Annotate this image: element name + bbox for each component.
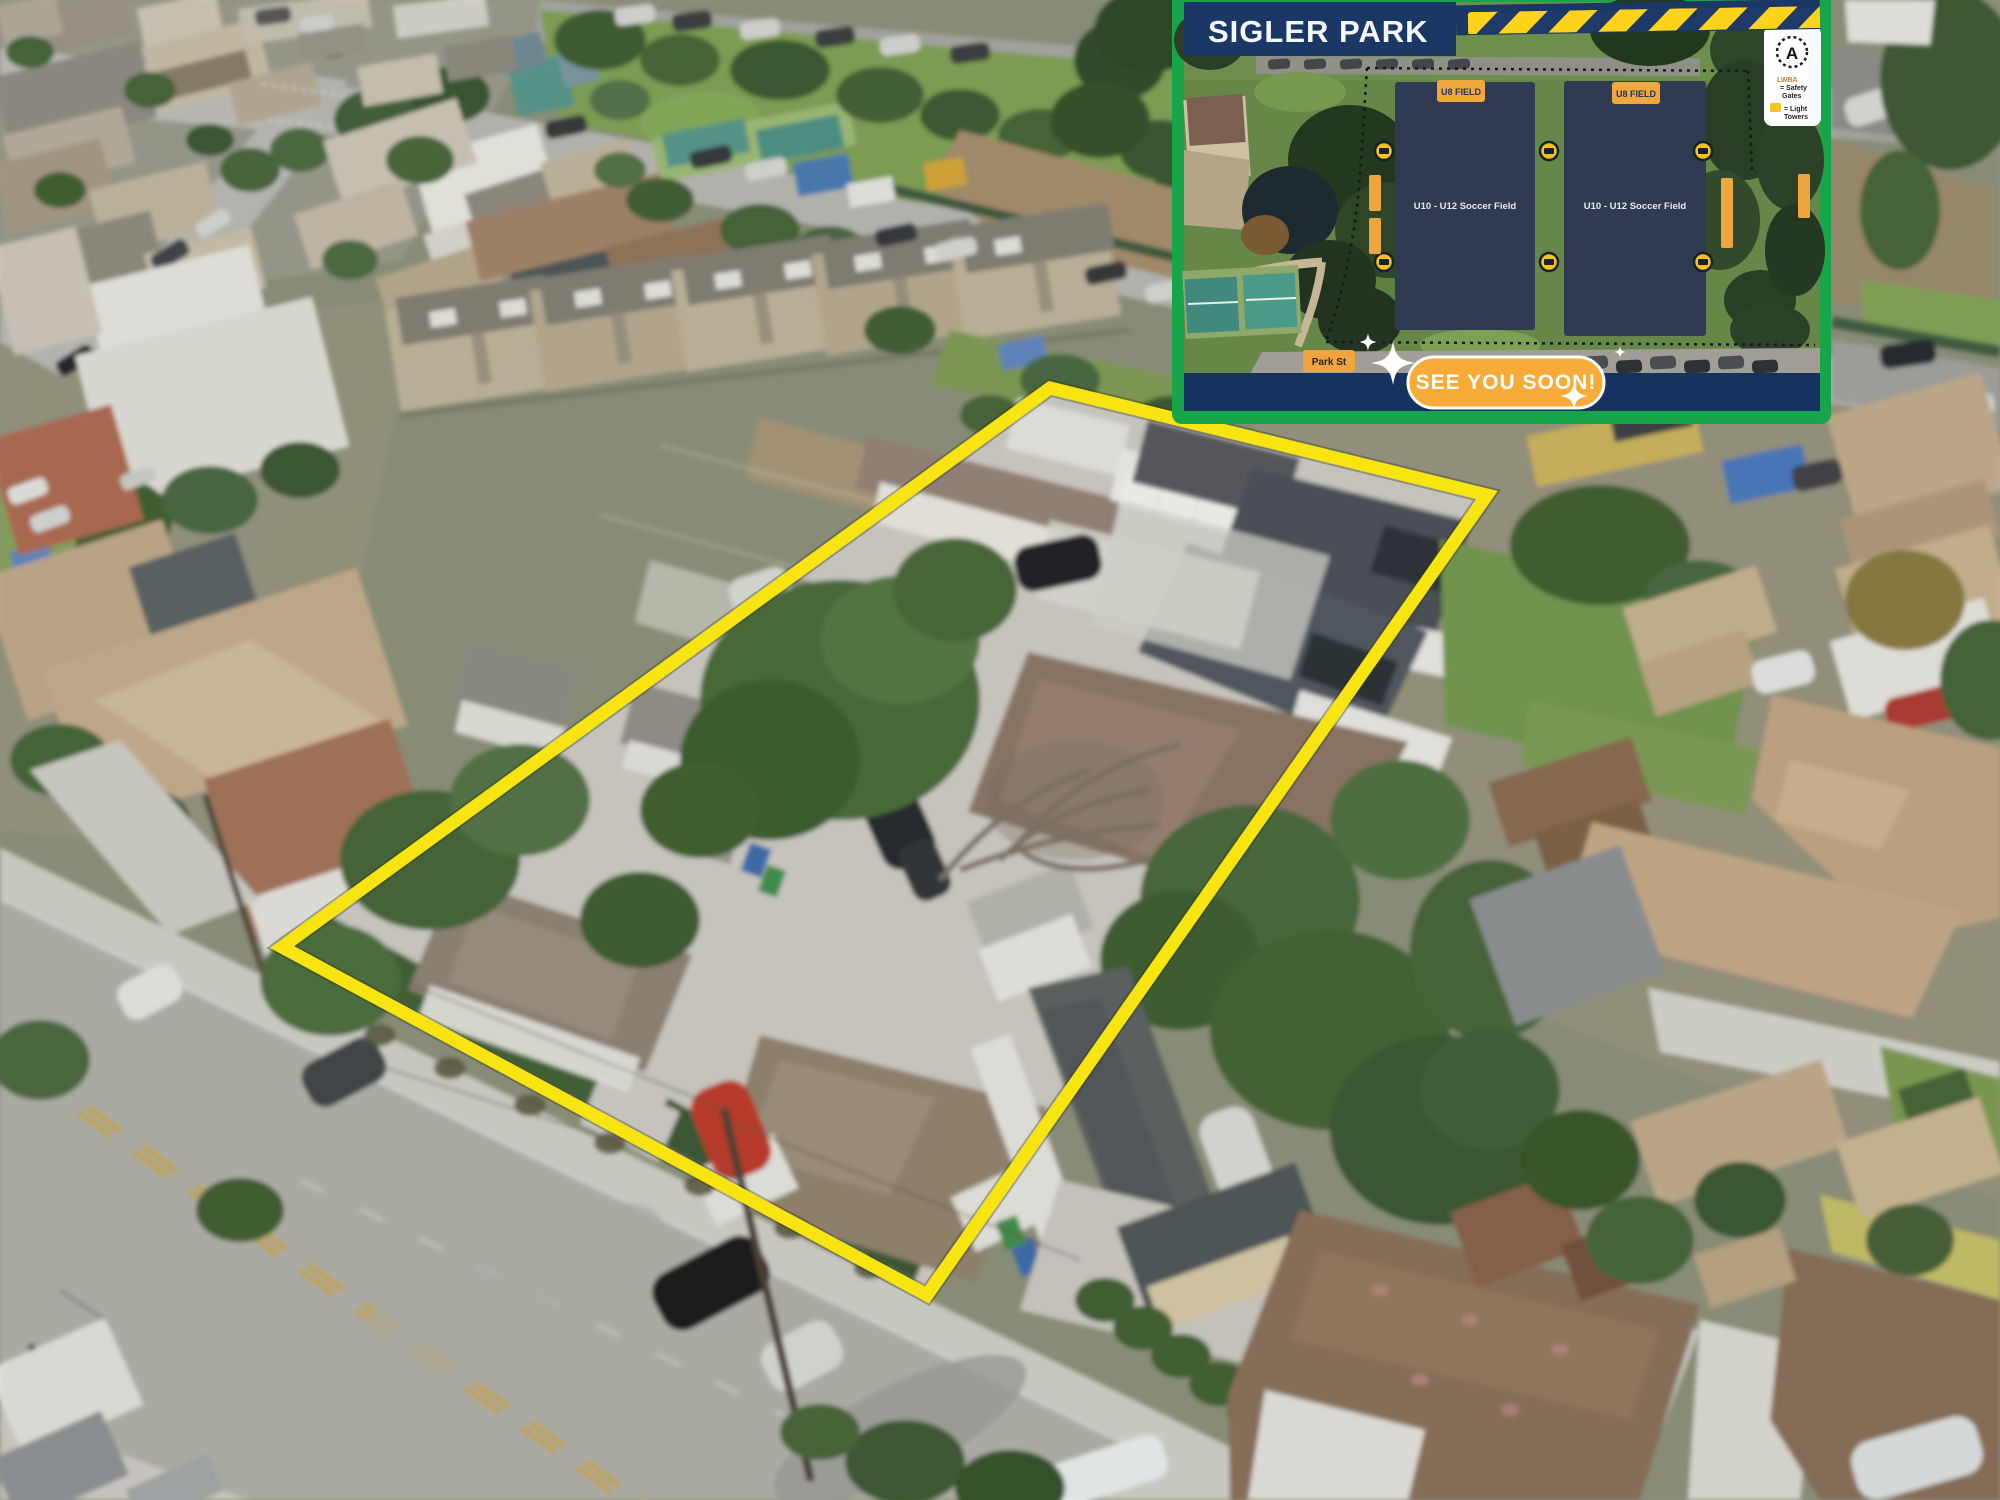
svg-text:SIGLER PARK: SIGLER PARK [1208, 14, 1429, 49]
svg-text:= Light: = Light [1784, 106, 1808, 113]
svg-text:= Safety: = Safety [1780, 85, 1807, 92]
svg-text:U8 FIELD: U8 FIELD [1616, 89, 1657, 99]
svg-text:Gates: Gates [1782, 93, 1802, 100]
svg-text:A: A [1786, 44, 1798, 63]
svg-text:Park St: Park St [1312, 357, 1347, 368]
svg-text:Towers: Towers [1784, 114, 1808, 121]
svg-text:U10 - U12 Soccer Field: U10 - U12 Soccer Field [1584, 201, 1687, 212]
svg-text:SEE YOU SOON!: SEE YOU SOON! [1416, 371, 1597, 394]
svg-text:U10 - U12 Soccer Field: U10 - U12 Soccer Field [1414, 201, 1517, 212]
svg-text:LWBA: LWBA [1777, 77, 1798, 84]
svg-text:U8 FIELD: U8 FIELD [1441, 87, 1482, 97]
